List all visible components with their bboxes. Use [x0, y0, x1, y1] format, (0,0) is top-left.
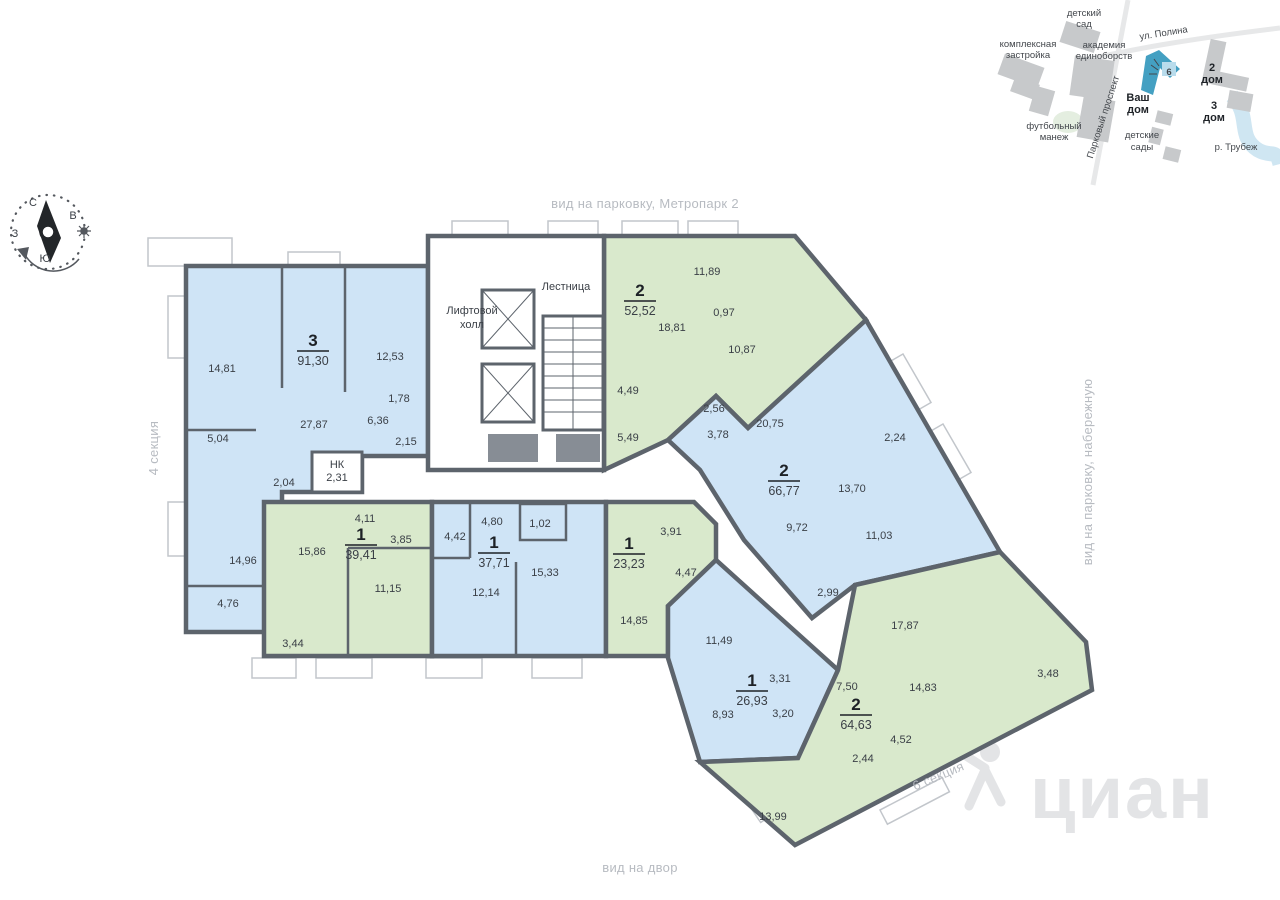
balcony: [168, 296, 185, 358]
svg-text:64,63: 64,63: [840, 718, 871, 732]
watermark-text: циан: [1030, 751, 1215, 834]
minimap-label-complex-1: комплексная: [1000, 39, 1057, 50]
floor-plan-page: циан 6 детский сад комплексная: [0, 0, 1280, 900]
room-area: 6,36: [367, 415, 388, 427]
room-area: 3,78: [707, 429, 728, 441]
floor-plan-canvas: циан 6 детский сад комплексная: [0, 0, 1280, 900]
balcony: [148, 238, 232, 266]
room-area: 9,72: [786, 522, 807, 534]
svg-text:91,30: 91,30: [297, 354, 328, 368]
room-area: 4,49: [617, 385, 638, 397]
service-shaft-1: [488, 434, 538, 462]
minimap-label-your-house-2: дом: [1127, 104, 1149, 116]
svg-text:1: 1: [356, 525, 365, 544]
room-area: 3,91: [660, 526, 681, 538]
compass-south: Ю: [39, 253, 50, 265]
staircase-label: Лестница: [542, 281, 591, 293]
room-area: 3,44: [282, 638, 303, 650]
minimap-label-academy-1: академия: [1083, 40, 1126, 51]
room-area: 4,52: [890, 734, 911, 746]
balcony: [168, 502, 185, 556]
svg-text:2: 2: [635, 281, 644, 300]
room-area: 11,89: [694, 266, 721, 278]
room-area: 20,75: [756, 418, 784, 430]
minimap-label-academy-2: единоборств: [1076, 51, 1133, 62]
view-label-right: вид на парковку, набережную: [1080, 379, 1095, 566]
compass-sun-icon: [77, 224, 91, 238]
room-area: 11,49: [706, 635, 733, 647]
room-area: 12,53: [376, 351, 404, 363]
minimap-label-house2-num: 2: [1209, 62, 1215, 74]
room-area: 15,33: [531, 567, 559, 579]
minimap-label-daycares-1: детские: [1125, 130, 1159, 141]
room-area: 18,81: [658, 322, 686, 334]
svg-text:1: 1: [489, 533, 498, 552]
minimap-label-house2-word: дом: [1201, 74, 1223, 86]
minimap-building-daycare-3: [1163, 146, 1182, 162]
compass-west: З: [12, 228, 19, 240]
room-area: 7,50: [836, 681, 857, 693]
room-area: 4,47: [675, 567, 696, 579]
svg-text:52,52: 52,52: [624, 304, 655, 318]
minimap-label-daycares-2: сады: [1131, 142, 1154, 153]
room-area: 1,78: [388, 393, 409, 405]
svg-text:39,41: 39,41: [345, 548, 376, 562]
minimap-label-house3-num: 3: [1211, 100, 1217, 112]
elevator-hall-label-1: Лифтовой: [446, 305, 497, 317]
balcony: [688, 221, 738, 235]
minimap-label-arena-2: манеж: [1040, 132, 1069, 143]
room-area: 8,93: [712, 709, 733, 721]
svg-text:1: 1: [624, 534, 633, 553]
room-area: 2,56: [703, 403, 724, 415]
room-area: 2,44: [852, 753, 873, 765]
balcony: [548, 221, 598, 235]
room-area: 1,02: [529, 518, 550, 530]
minimap-label-complex-2: застройка: [1006, 50, 1051, 61]
minimap-label-river: р. Трубеж: [1215, 142, 1258, 153]
balcony: [252, 658, 296, 678]
view-label-bottom: вид на двор: [602, 860, 678, 875]
elevator-hall-label-2: холл: [460, 319, 484, 331]
room-area: 11,15: [375, 583, 402, 595]
svg-text:1: 1: [747, 671, 756, 690]
compass-east: В: [69, 210, 76, 222]
room-area: 5,49: [617, 432, 638, 444]
svg-text:2: 2: [779, 461, 788, 480]
minimap-building-number: 6: [1166, 67, 1171, 78]
room-area: 10,87: [728, 344, 756, 356]
room-area: 27,87: [300, 419, 328, 431]
svg-text:23,23: 23,23: [613, 557, 644, 571]
storage-nk-area: 2,31: [326, 472, 347, 484]
view-label-top: вид на парковку, Метропарк 2: [551, 196, 739, 211]
balcony: [426, 658, 482, 678]
cian-watermark-icon-body: [963, 754, 1001, 806]
room-area: 12,14: [472, 587, 500, 599]
svg-text:2: 2: [851, 695, 860, 714]
room-area: 14,81: [208, 363, 236, 375]
room-area: 4,76: [217, 598, 238, 610]
minimap-label-kindergarten-2: сад: [1076, 19, 1092, 30]
room-area: 2,15: [395, 436, 416, 448]
room-area: 0,97: [713, 307, 734, 319]
room-area: 11,03: [866, 530, 893, 542]
room-area: 3,31: [769, 673, 790, 685]
room-area: 13,70: [838, 483, 866, 495]
balcony: [532, 658, 582, 678]
section-label-4: 4 секция: [146, 421, 161, 475]
minimap-building-daycare-1: [1155, 110, 1173, 126]
room-area: 4,80: [481, 516, 502, 528]
room-area: 15,86: [298, 546, 326, 558]
room-area: 5,04: [207, 433, 228, 445]
room-area: 4,11: [355, 513, 376, 525]
room-area: 17,87: [891, 620, 919, 632]
minimap-label-arena-1: футбольный: [1026, 121, 1081, 132]
svg-text:3: 3: [308, 331, 317, 350]
room-area: 14,83: [909, 682, 937, 694]
room-area: 2,24: [884, 432, 905, 444]
room-area: 2,99: [817, 587, 838, 599]
room-area: 3,20: [772, 708, 793, 720]
balcony: [622, 221, 678, 235]
compass-hub: [41, 225, 55, 239]
room-area: 4,42: [444, 531, 465, 543]
room-area: 14,96: [229, 555, 257, 567]
svg-text:26,93: 26,93: [736, 694, 767, 708]
room-area: 3,48: [1037, 668, 1058, 680]
svg-text:66,77: 66,77: [768, 484, 799, 498]
room-area: 14,85: [620, 615, 648, 627]
compass-north: С: [29, 197, 37, 209]
apartment-shapes: [186, 236, 1092, 845]
room-area: 2,04: [273, 477, 294, 489]
minimap-label-kindergarten-1: детский: [1067, 8, 1101, 19]
svg-text:37,71: 37,71: [478, 556, 509, 570]
minimap-label-your-house-1: Ваш: [1126, 92, 1149, 104]
location-minimap[interactable]: 6 детский сад комплексная застройка акад…: [998, 0, 1280, 185]
room-area: 13,99: [759, 811, 787, 823]
minimap-label-house3-word: дом: [1203, 112, 1225, 124]
balcony: [316, 658, 372, 678]
storage-nk-label: НК: [330, 459, 345, 471]
cian-watermark: циан: [963, 742, 1215, 834]
room-area: 3,85: [390, 534, 411, 546]
balcony: [452, 221, 508, 235]
service-shaft-2: [556, 434, 600, 462]
compass: С В З Ю: [11, 195, 91, 271]
minimap-building-house3: [1227, 90, 1254, 112]
